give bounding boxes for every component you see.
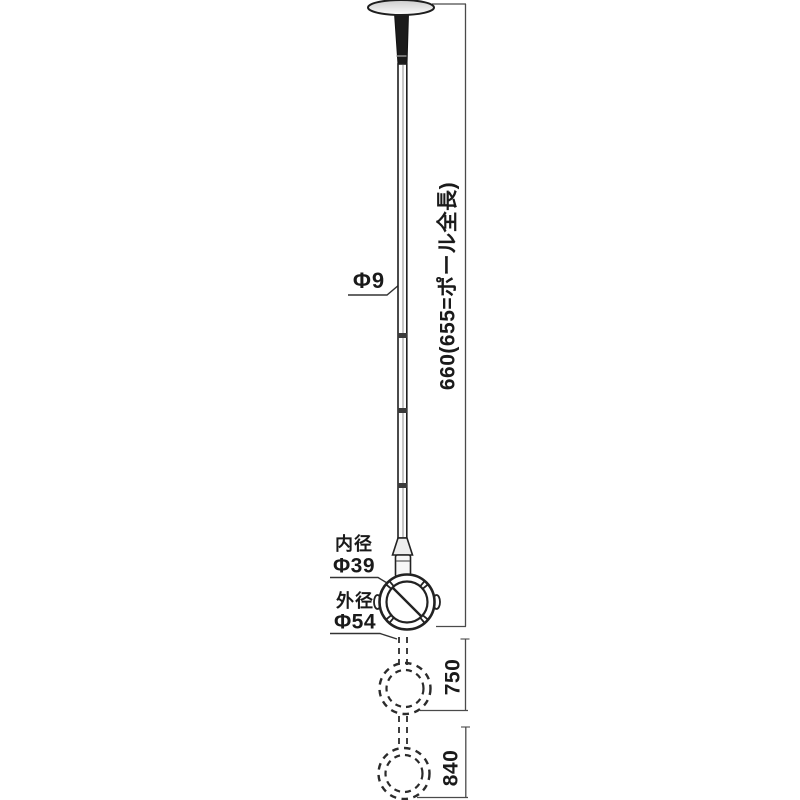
outer-diameter-value: Φ54 bbox=[334, 612, 376, 633]
dimension-extended-840: 840 bbox=[441, 750, 462, 787]
dimension-extended-750: 750 bbox=[443, 659, 464, 696]
pole-joint-2 bbox=[398, 408, 407, 413]
inner-diameter-label: 内径 bbox=[335, 535, 373, 553]
leader-inner-diameter bbox=[330, 578, 392, 587]
pole-diameter-label: Φ9 bbox=[353, 270, 385, 292]
extended-position-1 bbox=[380, 637, 431, 714]
pole-end-cap bbox=[393, 538, 413, 555]
dashed-ring-1-inner bbox=[387, 670, 424, 707]
dimension-total-length: 660(655=ポール全長) bbox=[438, 182, 459, 390]
hanging-ring bbox=[374, 575, 440, 630]
inner-diameter-value: Φ39 bbox=[333, 556, 375, 577]
dashed-ring-2-inner bbox=[386, 755, 423, 792]
ceiling-plate bbox=[368, 0, 434, 15]
technical-drawing-page: Φ9 内径 Φ39 外径 Φ54 660(655=ポール全長) 750 840 bbox=[0, 0, 800, 800]
leader-outer-diameter bbox=[330, 634, 397, 640]
pole-hanger-line-art bbox=[0, 0, 800, 800]
extended-position-2 bbox=[379, 716, 430, 799]
pole-joint-1 bbox=[398, 333, 407, 338]
outer-diameter-label: 外径 bbox=[336, 592, 374, 610]
pole-joint-3 bbox=[398, 483, 407, 488]
